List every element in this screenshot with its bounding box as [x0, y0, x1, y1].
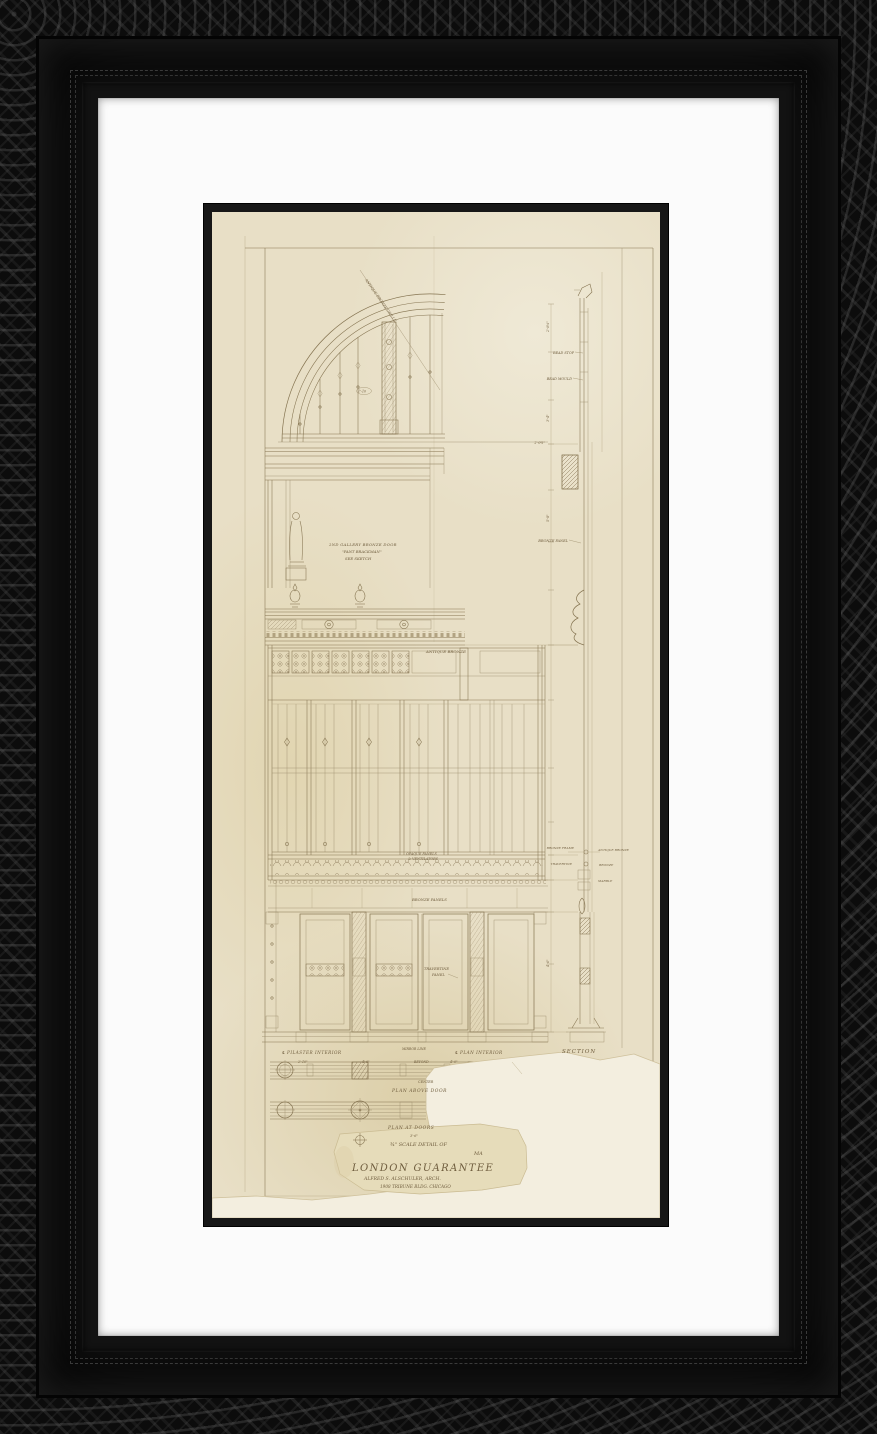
travertine-label2: PANEL — [431, 973, 445, 977]
gallery-note-line2: "PANT BRACKMAN" — [342, 549, 382, 554]
title-ma: MA — [473, 1151, 483, 1157]
title-architect: ALFRED S. ALSCHULER, ARCH. — [363, 1176, 441, 1182]
dim-46: 4'-6" — [361, 1060, 370, 1064]
section-label: SECTION — [562, 1049, 596, 1055]
plan-at-doors-label: PLAN AT DOORS — [387, 1126, 434, 1131]
title-main: LONDON GUARANTEE — [351, 1163, 494, 1174]
title-scale: ¾" SCALE DETAIL OF — [390, 1141, 447, 1148]
door-elevation — [262, 880, 548, 1042]
fanlight-arch-elevation — [278, 270, 548, 442]
mirror-line-label: MIRROR LINE — [401, 1047, 427, 1051]
opaque-panels-label1: OPAQUE PANELS — [406, 852, 437, 856]
section-note-left1: BRONZE FRAME — [546, 846, 575, 850]
dim-rot-4: 4'-6" — [546, 959, 550, 968]
section-dim-small: 2'-0½" — [533, 440, 545, 445]
wall-section — [548, 272, 606, 1042]
white-mat: ANTIQUE BRONZE GRILLE 1'-10 2ND GALLERY … — [98, 98, 779, 1336]
dim-40: 4'-0" — [449, 1060, 458, 1064]
section-note-right1: ANTIQUE BRONZE — [597, 848, 630, 852]
cl-plan-label: ℄ PLAN INTERIOR — [455, 1050, 503, 1055]
bead-stop-label: BEAD STOP — [552, 351, 575, 355]
cornice-elevation — [265, 584, 578, 645]
gallery-note-line3: SEE SKETCH — [345, 556, 372, 561]
ornament-frieze-band — [268, 855, 548, 908]
title-address: 1908 TRIBUNE BLDG. CHICAGO — [380, 1184, 451, 1189]
arch-dim: 1'-10 — [358, 390, 366, 394]
dim-rot-1: 2'-0⅜" — [546, 321, 550, 333]
dim-36: 3'-6" — [410, 1134, 418, 1138]
cl-pilaster-label: ℄ PILASTER INTERIOR — [282, 1050, 342, 1055]
section-note-right2: BRONZE — [598, 863, 614, 867]
bronze-panels-label: BRONZE PANELS — [411, 897, 447, 902]
dim-210: 2'-10" — [297, 1060, 308, 1064]
section-note-right3: MARBLE — [597, 879, 613, 883]
section-note-left2: TRAVERTINE — [551, 862, 573, 866]
gallery-note-line1: 2ND GALLERY BRONZE DOOR — [328, 542, 397, 547]
plan-above-door-label: PLAN ABOVE DOOR — [391, 1089, 447, 1094]
entablature-below-arch — [265, 448, 444, 588]
travertine-label1: TRAVERTINE — [424, 967, 449, 971]
bead-mould-label: BEAD MOULD — [546, 377, 573, 381]
plan-at-doors — [270, 1098, 426, 1122]
opaque-panels-label2: & VENTILATORS — [408, 857, 439, 861]
dim-rot-2: 3'-4" — [546, 414, 550, 422]
architectural-drawing: ANTIQUE BRONZE GRILLE 1'-10 2ND GALLERY … — [212, 212, 660, 1218]
antique-bronze-label: ANTIQUE BRONZE — [425, 649, 466, 654]
center-label: CENTER — [418, 1080, 434, 1084]
statue-sketch — [286, 513, 306, 581]
beyond-label: BEYOND — [413, 1060, 429, 1064]
bronze-panel-label: BRONZE PANEL — [537, 539, 568, 543]
bronze-screen-elevation — [268, 645, 545, 880]
framed-print-photo: { "frame": { "style_color": "#0d0d0d", "… — [0, 0, 877, 1434]
dim-rot-3: 5'-8" — [546, 514, 550, 522]
artwork: ANTIQUE BRONZE GRILLE 1'-10 2ND GALLERY … — [204, 204, 668, 1226]
